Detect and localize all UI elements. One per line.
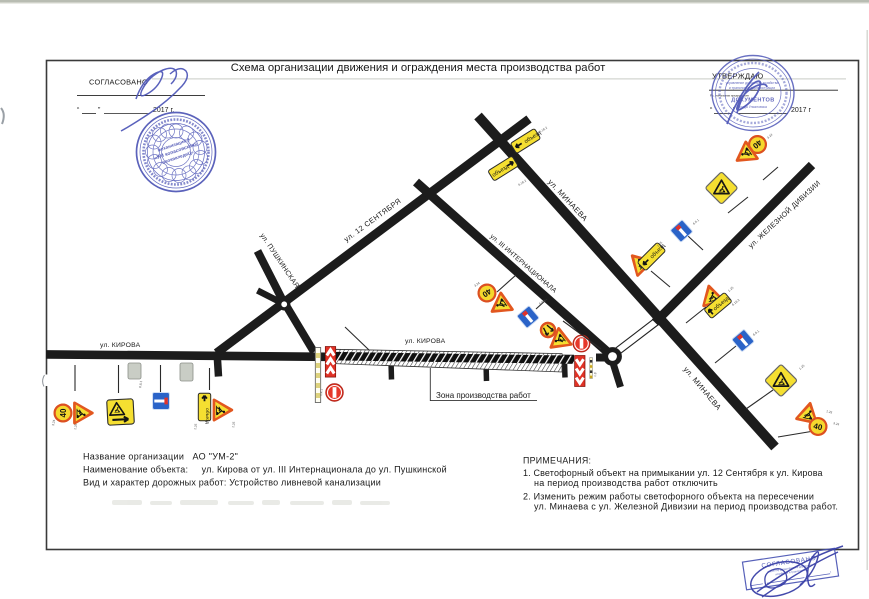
svg-text:ул. КИРОВА: ул. КИРОВА xyxy=(405,338,446,345)
svg-text:Вид и характер дорожных работ:: Вид и характер дорожных работ: Устройств… xyxy=(83,478,381,488)
svg-text:Схема организации движения и о: Схема организации движения и ограждения … xyxy=(231,62,606,74)
svg-text:2017 г: 2017 г xyxy=(791,107,812,114)
svg-text:ул. КИРОВА: ул. КИРОВА xyxy=(100,342,141,349)
svg-text:2. Изменить режим работы свето: 2. Изменить режим работы светофорного об… xyxy=(523,492,814,502)
svg-text:1. Светофорный объект на примы: 1. Светофорный объект на примыкании ул. … xyxy=(523,468,823,478)
svg-text:ПРИМЕЧАНИЯ:: ПРИМЕЧАНИЯ: xyxy=(523,456,591,466)
svg-text:Название организации АО "УМ-: Название организации АО "УМ-2" xyxy=(83,452,238,462)
svg-text:Наименование объекта: ул.: Наименование объекта: ул. Кирова от ул. … xyxy=(83,465,447,475)
svg-text:1.4.1: 1.4.1 xyxy=(319,388,324,396)
svg-text:Зона производства работ: Зона производства работ xyxy=(436,391,531,400)
svg-text:ул. Минаева с ул. Железной Див: ул. Минаева с ул. Железной Дивизии на пе… xyxy=(534,502,838,512)
svg-text:1.8: 1.8 xyxy=(593,372,597,377)
svg-text:СОГЛАСОВАНО: СОГЛАСОВАНО xyxy=(89,78,148,87)
svg-text:на период производства работ о: на период производства работ отключить xyxy=(534,478,718,488)
